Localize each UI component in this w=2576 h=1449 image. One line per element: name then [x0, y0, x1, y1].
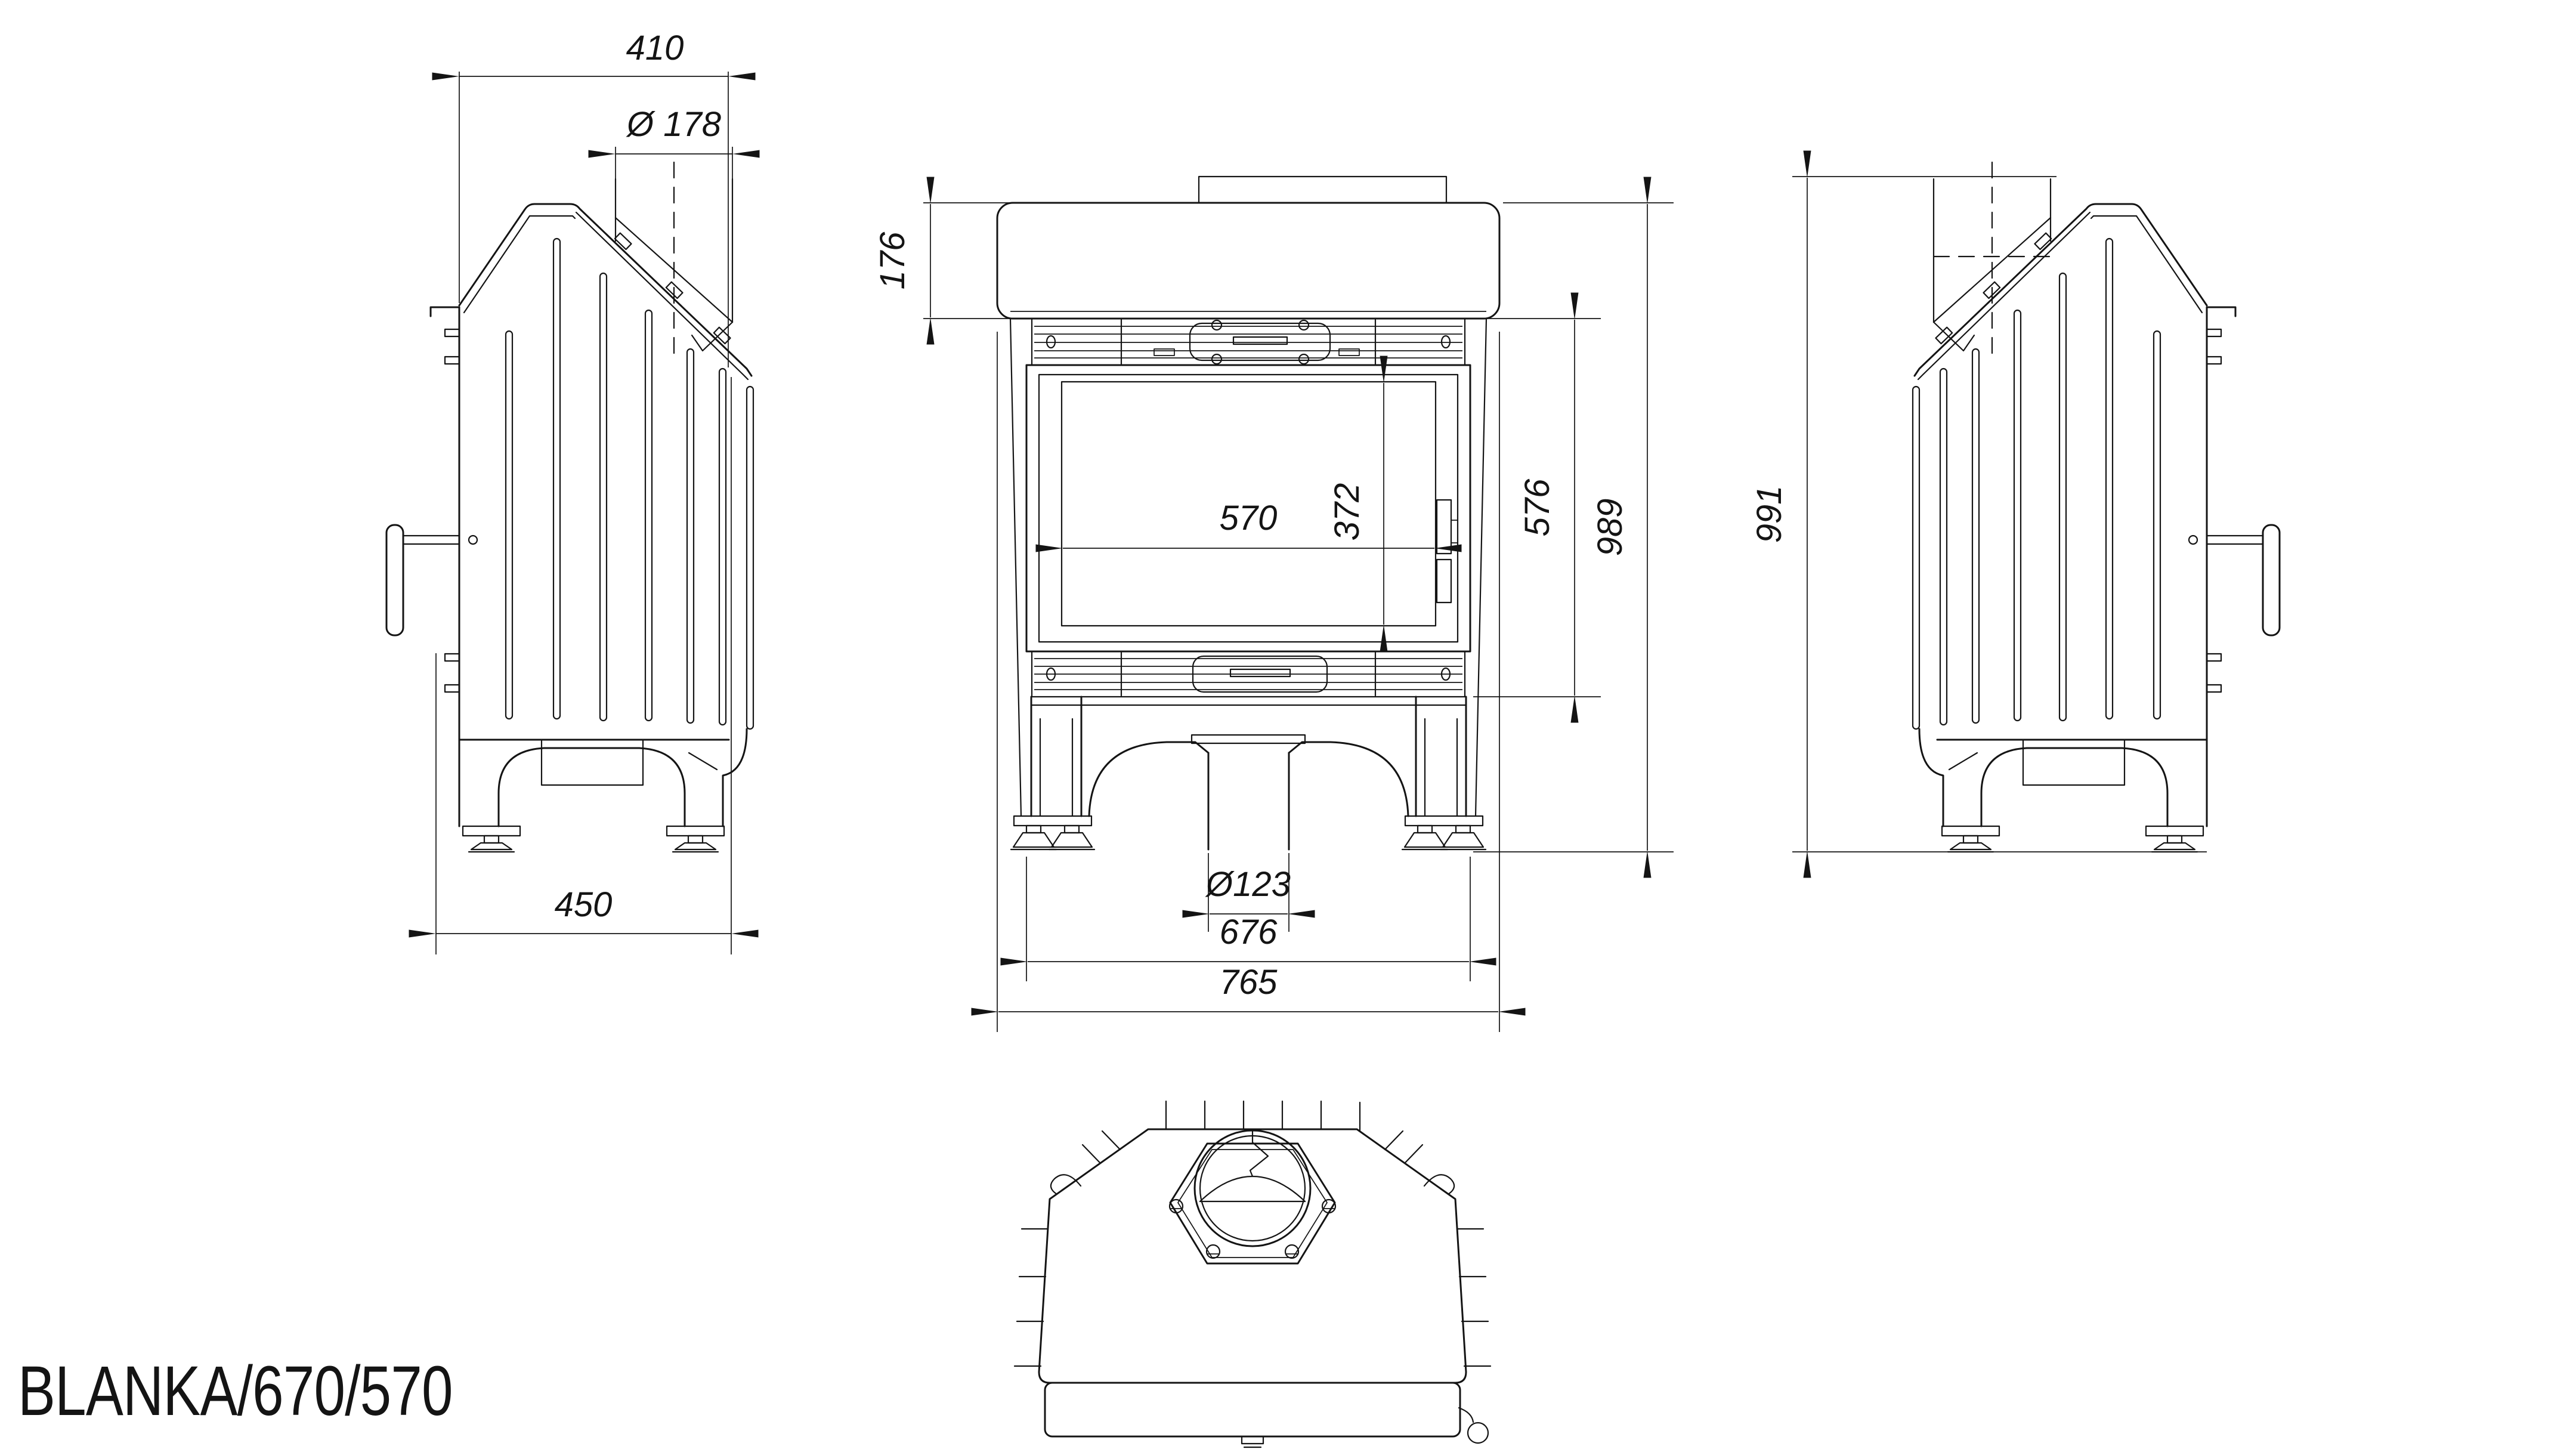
side-fins [506, 239, 753, 729]
side-base [459, 729, 747, 852]
door-latch [1437, 500, 1451, 554]
mount-tab [445, 329, 459, 336]
adjustable-foot[interactable] [2152, 836, 2197, 852]
mount-tab [2207, 357, 2221, 364]
left-side-view: 410 Ø 178 450 [386, 29, 753, 954]
mount-tab [2207, 654, 2221, 661]
adjustable-foot[interactable] [1049, 826, 1094, 849]
right-side-view: 991 [1750, 162, 2280, 852]
adjustable-foot[interactable] [1011, 826, 1056, 849]
dim-176: 176 [873, 203, 1014, 319]
lift-hook [1424, 1175, 1454, 1194]
handle-pivot [2189, 536, 2197, 544]
grille-slot [1233, 337, 1287, 344]
handle-pivot [469, 536, 477, 544]
foot-plate [463, 826, 520, 836]
dim-123-label: Ø123 [1205, 865, 1291, 904]
pedestal-plate [1192, 735, 1305, 743]
dim-989-label: 989 [1591, 499, 1629, 557]
top-body-outline [1039, 1129, 1466, 1383]
top-view [1015, 1101, 1490, 1447]
fin [645, 310, 652, 721]
fin [2154, 331, 2160, 719]
front-base [1011, 697, 1486, 849]
ash-recess [2023, 740, 2124, 785]
front-latch[interactable] [1242, 1436, 1263, 1447]
door-handle-side[interactable] [386, 525, 459, 635]
chain-ring[interactable] [1459, 1408, 1488, 1443]
fin [2059, 273, 2066, 721]
adjustable-foot[interactable] [1948, 836, 1993, 852]
grille-slot [1230, 669, 1290, 676]
foot-plate [1942, 826, 1999, 836]
drawing-title: BLANKA/670/570 [18, 1351, 453, 1431]
screw [1212, 320, 1221, 330]
fin [719, 369, 726, 725]
lift-hook [1051, 1175, 1081, 1194]
dim-410-label: 410 [626, 29, 684, 67]
door-handle-side[interactable] [2207, 525, 2280, 635]
adjustable-foot[interactable] [1402, 826, 1448, 849]
screw [1442, 336, 1450, 348]
mount-tab [445, 685, 459, 692]
flue-collar-top [1195, 1129, 1310, 1246]
screw [1212, 354, 1221, 364]
dim-676-label: 676 [1220, 913, 1278, 951]
dim-570-label: 570 [1220, 499, 1278, 537]
lower-grille [1032, 651, 1465, 697]
technical-drawing: 410 Ø 178 450 [0, 0, 2576, 1449]
fin [506, 331, 512, 719]
foot-plate [2146, 826, 2203, 836]
fin [747, 387, 753, 729]
adjustable-foot[interactable] [469, 836, 514, 852]
damper-dome [1200, 1176, 1305, 1201]
side-body [1915, 204, 2235, 740]
fin [1972, 349, 1979, 723]
fin [1913, 387, 1919, 729]
front-band [1045, 1383, 1460, 1436]
fin [2106, 239, 2113, 719]
fin [2014, 310, 2021, 721]
drawing-sheet: 410 Ø 178 450 [0, 0, 2576, 1449]
adjustable-foot[interactable] [673, 836, 718, 852]
adjustable-foot[interactable] [1440, 826, 1486, 849]
front-view: 176 570 372 576 989 Ø123 [873, 177, 1674, 1032]
mount-tab [445, 357, 459, 364]
foot-plate [1405, 816, 1483, 826]
side-body [431, 204, 752, 740]
fin [600, 273, 607, 721]
flue-box-top [1199, 177, 1446, 203]
mount-tab [2207, 685, 2221, 692]
dim-178-label: Ø 178 [626, 105, 721, 144]
side-fins [1913, 239, 2160, 729]
top-cap [997, 203, 1499, 319]
dim-372-label: 372 [1328, 483, 1366, 541]
fin [687, 349, 694, 723]
mount-tab [2207, 329, 2221, 336]
ash-recess [542, 740, 643, 785]
dim-372: 372 [1328, 383, 1384, 625]
side-base [1919, 729, 2207, 852]
dim-570: 570 [1063, 499, 1434, 548]
side-wing-left [1010, 319, 1021, 816]
dim-576-label: 576 [1518, 478, 1557, 537]
upper-grille [1032, 319, 1465, 365]
screw [1299, 320, 1309, 330]
dim-176-label: 176 [873, 231, 912, 290]
roof-bolt [2034, 233, 2051, 249]
dim-410: 410 [459, 29, 728, 367]
roof-bolt [615, 233, 632, 249]
fin [1940, 369, 1947, 725]
door-latch [1437, 560, 1451, 603]
dim-765-label: 765 [1220, 963, 1278, 1002]
grille-plate [1190, 323, 1330, 360]
foot-plate [1014, 816, 1091, 826]
dim-576: 576 [1473, 319, 1601, 697]
dim-989: 989 [1473, 203, 1674, 852]
dim-991-label: 991 [1750, 486, 1789, 543]
screw [1299, 354, 1309, 364]
dim-450-label: 450 [555, 885, 613, 924]
side-wing-right [1476, 319, 1486, 816]
foot-plate [667, 826, 724, 836]
screw [1047, 336, 1055, 348]
roof-bolt [1935, 328, 1952, 344]
fin [553, 239, 560, 719]
mount-tab [445, 654, 459, 661]
